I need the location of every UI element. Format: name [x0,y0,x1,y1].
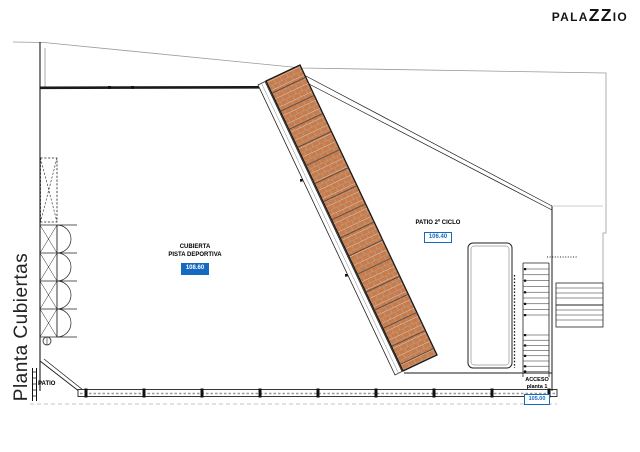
logo-part3: IO [613,10,628,24]
main-hall-outline [40,42,259,392]
courtyard [468,243,515,368]
interior-stair [523,263,549,377]
acceso-planta1-label: ACCESO planta 1 105.00 [512,377,562,405]
exterior-stair [547,257,603,327]
plan-sheet: CUBIERTA PISTA DEPORTIVA 108.60 PATIO 2º… [0,0,640,452]
logo-part1: PALA [552,10,589,24]
acceso-line2: planta 1 [512,384,562,391]
cubierta-level-badge: 108.60 [181,263,209,275]
cubierta-pista-label: CUBIERTA PISTA DEPORTIVA 108.60 [151,244,239,275]
palazzio-logo: PALAZZIO [552,5,628,26]
cubierta-line2: PISTA DEPORTIVA [151,252,239,260]
cubierta-line1: CUBIERTA [151,244,239,252]
patio-segundo-ciclo-label: PATIO 2º CICLO 106.40 [395,220,481,243]
patio2-level-badge: 106.40 [424,232,452,244]
patio-label: PATIO [38,381,55,389]
logo-part2: ZZ [589,5,613,25]
acceso-line1: ACCESO [512,377,562,384]
left-door-column [40,158,77,345]
patio2-text: PATIO 2º CICLO [395,220,481,228]
acceso-level-badge: 105.00 [524,394,551,405]
perimeter-fence [78,389,557,398]
page-title: Planta Cubiertas [10,242,34,412]
